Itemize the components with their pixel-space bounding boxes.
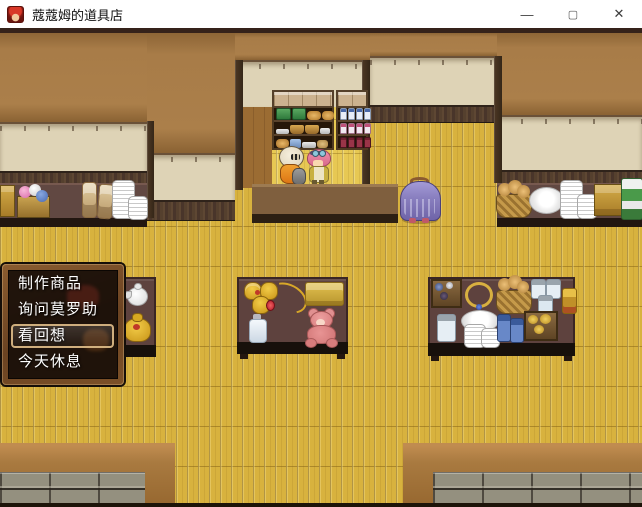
shop-counter-top	[252, 184, 398, 214]
wall-right-beige	[497, 115, 642, 172]
wall-midleft-trim	[147, 200, 235, 221]
table-leg	[564, 356, 572, 361]
app-icon	[7, 6, 24, 23]
bread-loaves	[307, 111, 321, 120]
glass-jar	[437, 314, 456, 342]
title-bar: 蔻蔻姆的道具店 — ▢ ✕	[0, 0, 642, 29]
metal-tray	[320, 128, 330, 134]
shop-counter-front	[252, 214, 398, 223]
mask-eyes	[291, 154, 300, 160]
foot	[422, 218, 429, 223]
window-controls: — ▢ ✕	[504, 0, 642, 28]
crate-item-white	[446, 282, 453, 289]
blue-ball	[36, 190, 48, 202]
wall-corner-pillar	[147, 121, 154, 218]
window-title: 蔻蔻姆的道具店	[32, 5, 123, 24]
blue-jar	[497, 314, 511, 342]
bread-basket	[305, 125, 319, 134]
nail-ticks	[370, 60, 497, 65]
maximize-button[interactable]: ▢	[550, 0, 596, 28]
menu-item-craft-goods[interactable]: 制作商品	[9, 271, 117, 297]
purple-hooded-figure-sprite	[400, 177, 439, 223]
wall-midright-trim	[370, 105, 497, 123]
plate-stack	[128, 196, 148, 220]
shelf-row	[274, 108, 332, 122]
bread-basket	[290, 125, 304, 134]
green-bottle-rack	[621, 178, 642, 220]
foot	[409, 218, 416, 223]
potion-bottle	[340, 123, 347, 134]
red-seal	[255, 290, 260, 295]
gold-chest	[0, 185, 15, 217]
nail-ticks	[235, 64, 370, 69]
wall-midleft-brown	[147, 33, 235, 153]
selection-cursor	[11, 324, 114, 348]
shop-left-pillar	[235, 60, 243, 190]
potion-bottle	[364, 123, 371, 134]
shelf-body	[336, 108, 368, 150]
shelf-top	[272, 90, 334, 108]
wall-left-beige	[0, 122, 147, 173]
yellow-money-bag	[123, 312, 150, 341]
teddy-leg	[326, 338, 338, 348]
gold-case	[305, 282, 344, 306]
table-leg	[240, 354, 248, 359]
cloak-folds	[404, 199, 435, 217]
wine-bottle	[340, 137, 347, 148]
gold-item	[540, 314, 551, 324]
shop-interior-wall	[243, 103, 272, 188]
menu-item-label: 询问莫罗助	[18, 301, 98, 318]
teapot-spout	[124, 291, 132, 299]
table-leg	[431, 356, 439, 361]
wall-right-pillar	[494, 56, 502, 183]
menu-item-view-recollection[interactable]: 看回想	[9, 323, 117, 349]
teddy-leg	[305, 338, 317, 348]
potion-bottle	[340, 108, 347, 120]
bread-loaves	[317, 140, 328, 148]
wall-midright-beige	[370, 56, 497, 107]
masked-shopkeeper-sprite	[277, 146, 305, 188]
teapot-lid	[134, 283, 142, 290]
nail-ticks	[497, 119, 642, 124]
close-button[interactable]: ✕	[596, 0, 642, 28]
goggle-lens	[319, 150, 326, 157]
pink-teddy-bear	[303, 308, 339, 346]
menu-item-label: 今天休息	[18, 353, 82, 370]
bottom-left-bricks	[0, 472, 145, 507]
gold-item	[528, 315, 538, 324]
gold-trinket	[562, 288, 577, 314]
bread-basket	[496, 194, 532, 218]
scroll-bundle	[82, 182, 97, 218]
shelf-body	[272, 108, 334, 150]
red-seal	[133, 324, 140, 330]
goggle-lens	[312, 150, 319, 157]
shelf-row	[338, 108, 366, 122]
white-teapot	[124, 282, 149, 307]
gray-sack	[292, 168, 306, 185]
bottle-body	[249, 319, 267, 343]
white-potion-bottle	[249, 314, 265, 341]
bag-tie	[132, 313, 143, 322]
left-counter-front	[0, 218, 147, 227]
bottom-edge	[0, 503, 642, 507]
potion-bottle	[348, 123, 355, 134]
shelf-row	[274, 122, 332, 136]
right-item-table-front	[428, 343, 575, 356]
shelf-row	[338, 136, 366, 148]
potion-bottle	[348, 108, 355, 120]
large-plate	[529, 187, 564, 214]
wall-midright-brown	[370, 33, 497, 56]
crate-item-dark	[440, 292, 448, 300]
bottle-shelf	[336, 90, 368, 150]
command-menu: 制作商品 询问莫罗助 看回想 今天休息	[8, 270, 118, 379]
shelf-row	[338, 122, 366, 136]
potion-bottle	[356, 123, 363, 134]
game-viewport[interactable]: 制作商品 询问莫罗助 看回想 今天休息	[0, 28, 642, 507]
shop-top-brown	[235, 33, 370, 60]
green-chest	[292, 108, 306, 120]
metal-tray	[276, 129, 289, 134]
blue-jar	[510, 318, 524, 343]
wall-right-brown	[497, 33, 642, 115]
pink-haired-customer-sprite	[305, 148, 331, 188]
bread	[517, 185, 530, 198]
minimize-button[interactable]: —	[504, 0, 550, 28]
potion-bottle	[364, 108, 371, 120]
menu-item-ask-moro[interactable]: 询问莫罗助	[9, 297, 117, 323]
wall-left-brown	[0, 33, 147, 122]
crate-item-blue	[435, 283, 443, 291]
wine-bottle	[356, 137, 363, 148]
bread-shelf	[272, 90, 334, 150]
nail-ticks	[147, 157, 235, 162]
menu-item-label: 制作商品	[18, 275, 82, 292]
red-gem-pendant	[266, 300, 275, 311]
wine-bottle	[348, 137, 355, 148]
nail-ticks	[0, 126, 147, 131]
wine-bottle	[364, 137, 371, 148]
bread-loaves	[322, 111, 334, 120]
bottom-right-bricks	[433, 472, 642, 507]
gold-item	[534, 325, 544, 334]
gold-drawer-chest	[594, 184, 624, 216]
shelf-top	[336, 90, 368, 108]
menu-item-rest-today[interactable]: 今天休息	[9, 349, 117, 375]
green-chest	[276, 108, 291, 120]
command-menu-window: 制作商品 询问莫罗助 看回想 今天休息	[2, 264, 124, 385]
table-leg	[337, 354, 345, 359]
wall-midleft-beige	[147, 153, 235, 202]
right-counter-front	[497, 218, 642, 227]
potion-bottle	[356, 108, 363, 120]
app-window: 蔻蔻姆的道具店 — ▢ ✕	[0, 0, 642, 507]
bread	[517, 281, 529, 293]
